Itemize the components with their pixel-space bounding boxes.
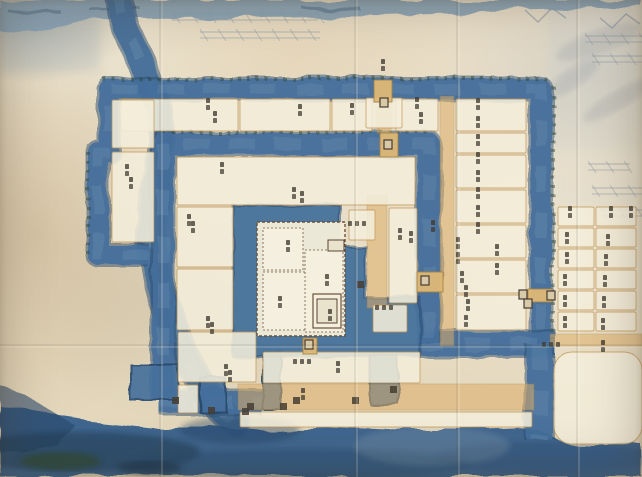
label-mark [362,221,366,226]
gate-tower [519,290,527,299]
label-mark [125,164,129,169]
label-mark [415,104,419,109]
label-mark [278,296,282,301]
label-mark [495,251,499,256]
label-mark [476,134,480,139]
label-mark [206,323,210,328]
parcel [112,100,154,148]
label-mark [292,187,296,192]
parcel [240,99,330,131]
gate-mark [208,407,215,414]
label-mark [398,228,402,233]
label-mark [328,316,332,321]
label-mark [476,170,480,175]
label-mark [476,222,480,227]
label-mark [601,318,605,323]
label-mark [224,371,228,376]
label-mark [609,206,613,211]
label-mark [476,187,480,192]
parcel [456,225,526,258]
label-mark [292,194,296,199]
label-mark [210,329,214,334]
label-mark [464,285,468,290]
label-mark [278,303,282,308]
honmaru-yard [263,228,303,270]
parcel [456,99,526,131]
label-mark [191,221,195,226]
label-mark [565,239,569,244]
label-mark [419,119,423,124]
label-mark [419,112,423,117]
gate-mark [357,281,364,288]
gate-mark [242,408,249,415]
label-mark [565,232,569,237]
label-mark [301,395,305,400]
label-mark [350,103,354,108]
label-mark [601,347,605,352]
label-mark [464,315,468,320]
label-mark [476,177,480,182]
label-mark [464,322,468,327]
label-mark [325,281,329,286]
label-mark [476,105,480,110]
label-mark [565,259,569,264]
parcel [240,412,532,427]
gate-tower [421,276,429,285]
label-mark [563,302,567,307]
label-mark [129,177,133,182]
label-mark [125,171,129,176]
parcel [178,385,198,413]
label-mark [293,359,297,364]
label-mark [565,252,569,257]
label-mark [381,66,385,71]
label-mark [325,274,329,279]
label-mark [602,296,606,301]
keep-building [328,240,344,251]
label-mark [476,229,480,234]
parcel [263,352,420,383]
parcel [596,249,636,268]
label-mark [228,377,232,382]
label-mark [286,247,290,252]
label-mark [563,295,567,300]
label-mark [476,212,480,217]
label-mark [606,241,610,246]
label-mark [206,98,210,103]
label-mark [602,303,606,308]
sw-channel [200,378,226,412]
label-mark [629,206,633,211]
label-mark [603,275,607,280]
label-mark [210,322,214,327]
parcel [456,190,526,223]
label-mark [228,370,232,375]
sw-bastion-pond [130,364,178,400]
gate-tower [384,140,392,149]
castle-map-photo [0,0,642,477]
label-mark [563,281,567,286]
label-mark [601,325,605,330]
gate-mark [280,403,287,410]
label-mark [563,323,567,328]
label-mark [415,97,419,102]
label-mark [629,213,633,218]
label-mark [348,221,352,226]
label-mark [431,227,435,232]
label-mark [191,228,195,233]
parcel [596,270,636,289]
label-mark [464,292,468,297]
label-mark [476,205,480,210]
label-mark [476,152,480,157]
label-mark [224,364,228,369]
label-mark [187,214,191,219]
label-mark [609,213,613,218]
label-mark [300,359,304,364]
label-mark [604,254,608,259]
parcel [554,352,642,444]
label-mark [568,213,572,218]
keep-building [317,299,337,323]
gate-tower [380,98,388,107]
label-mark [563,316,567,321]
gate-tower [547,291,555,300]
label-mark [307,359,311,364]
label-mark [298,111,302,116]
parcel [456,133,526,153]
label-mark [476,141,480,146]
gate-mark [293,397,300,404]
label-mark [336,361,340,366]
label-mark [476,159,480,164]
honmaru-yard [263,272,307,330]
parcel [389,208,417,303]
label-mark [603,282,607,287]
label-mark [187,221,191,226]
label-mark [604,261,608,266]
label-mark [382,305,386,310]
label-mark [286,240,290,245]
parcel [178,332,256,382]
label-mark [328,309,332,314]
label-mark [476,116,480,121]
label-mark [476,123,480,128]
map-svg [0,0,642,477]
label-mark [409,231,413,236]
label-mark [495,263,499,268]
label-mark [206,316,210,321]
label-mark [476,194,480,199]
label-mark [129,184,133,189]
label-mark [381,59,385,64]
label-mark [563,274,567,279]
label-mark [476,98,480,103]
parcel [596,228,636,247]
label-mark [409,238,413,243]
label-mark [389,305,393,310]
label-mark [495,270,499,275]
label-mark [431,220,435,225]
label-mark [206,105,210,110]
road [440,96,454,346]
label-mark [300,198,304,203]
label-mark [495,244,499,249]
label-mark [220,169,224,174]
label-mark [460,271,464,276]
parcel [177,269,233,330]
label-mark [606,234,610,239]
gate-mark [172,397,179,404]
label-mark [568,206,572,211]
label-mark [460,278,464,283]
label-mark [398,235,402,240]
gate-tower [524,299,532,308]
parcel [177,207,233,267]
label-mark [300,191,304,196]
label-mark [220,162,224,167]
label-mark [213,118,217,123]
label-mark [375,305,379,310]
label-mark [350,110,354,115]
label-mark [298,104,302,109]
gate-mark [390,386,397,393]
label-mark [301,388,305,393]
label-mark [466,306,470,311]
label-mark [466,299,470,304]
parcel [112,152,154,242]
label-mark [213,111,217,116]
label-mark [336,368,340,373]
parcel [456,155,526,188]
